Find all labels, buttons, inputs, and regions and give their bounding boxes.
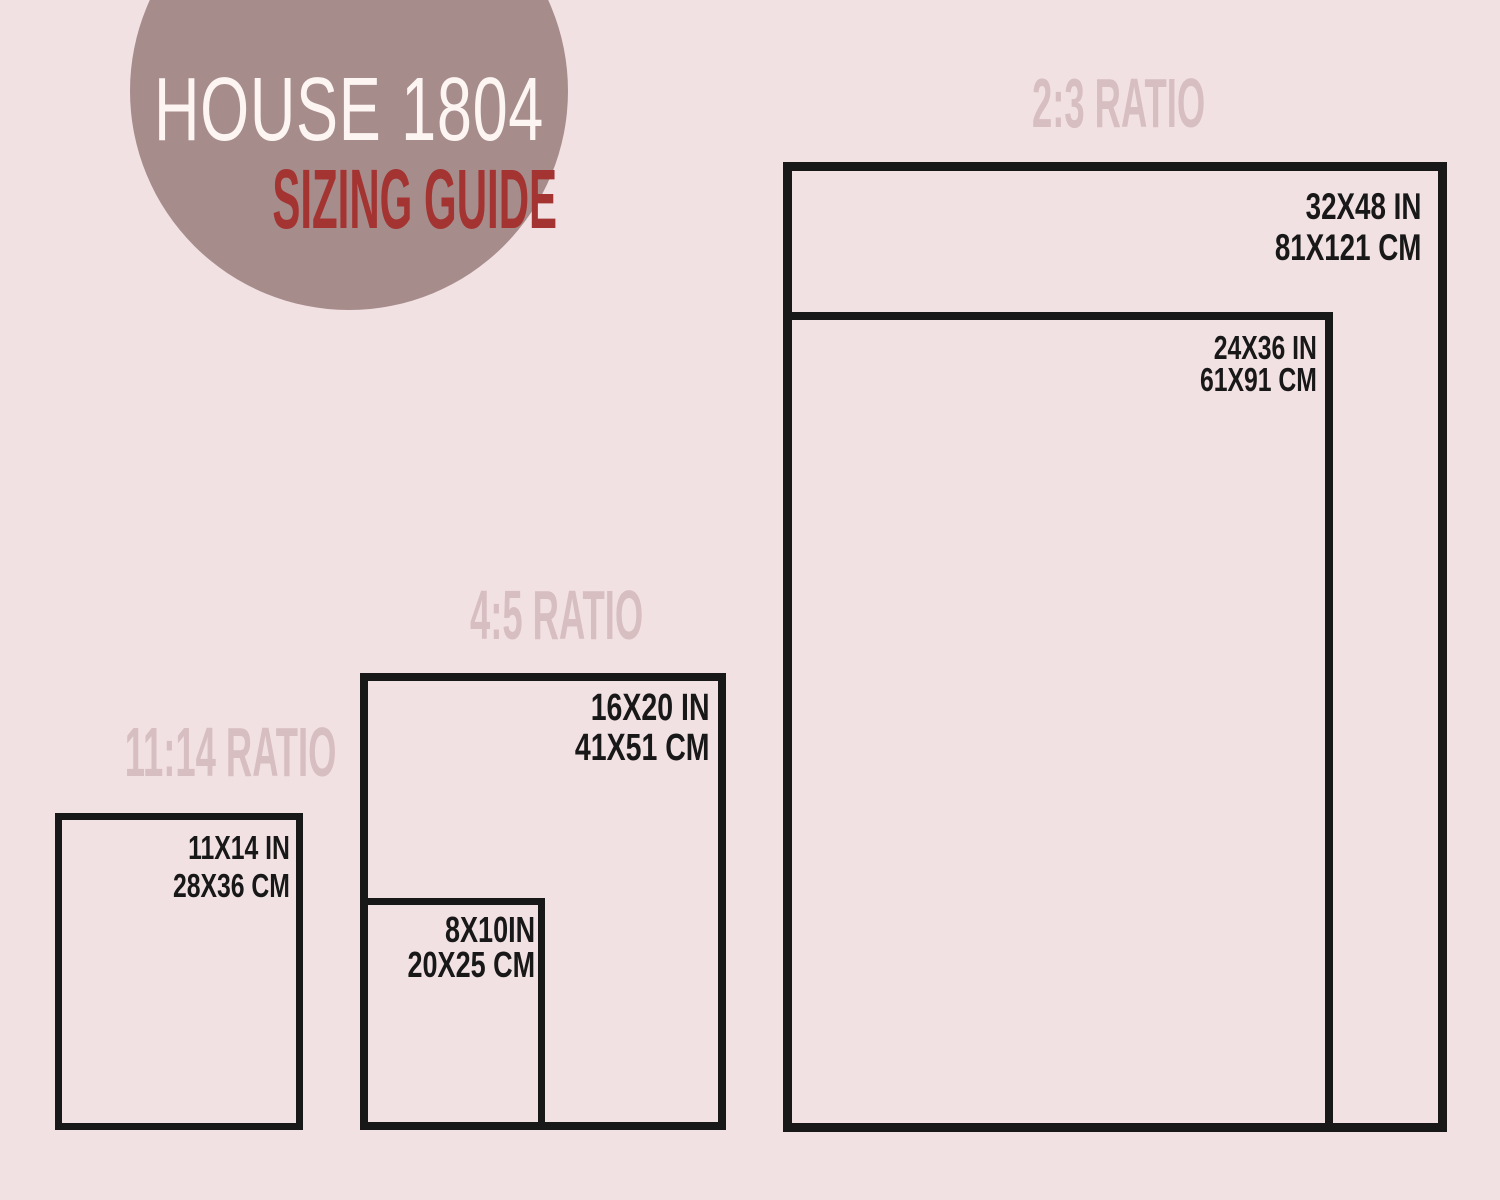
brand-name-right: 1804 xyxy=(401,65,544,155)
size-label-16x20-in: 16X20 IN xyxy=(575,688,710,728)
size-label-8x10-in: 8X10IN xyxy=(407,912,535,947)
ratio-heading-2-3-text: 2:3 RATIO xyxy=(1032,68,1205,138)
size-label-32x48-in: 32X48 IN xyxy=(1274,186,1421,227)
size-label-11x14-in: 11X14 IN xyxy=(173,829,290,867)
frame-8x10: 8X10IN 20X25 CM xyxy=(360,898,545,1130)
brand-name-left: HOUSE xyxy=(154,65,382,155)
ratio-heading-4-5-text: 4:5 RATIO xyxy=(470,580,643,650)
size-label-16x20-cm: 41X51 CM xyxy=(575,728,710,768)
size-label-32x48-cm: 81X121 CM xyxy=(1274,227,1421,268)
sizing-guide-title: SIZING GUIDE xyxy=(130,157,568,241)
ratio-heading-2-3: 2:3 RATIO xyxy=(952,68,1252,138)
size-label-8x10-cm: 20X25 CM xyxy=(407,947,535,982)
brand-logo-circle: HOUSE 1804 SIZING GUIDE xyxy=(130,0,568,310)
ratio-heading-11-14: 11:14 RATIO xyxy=(27,717,327,787)
frame-24x36: 24X36 IN 61X91 CM xyxy=(783,312,1333,1132)
size-label-11x14: 11X14 IN 28X36 CM xyxy=(134,829,290,905)
size-label-11x14-cm: 28X36 CM xyxy=(173,867,290,905)
size-label-24x36-cm: 61X91 CM xyxy=(1200,364,1317,396)
ratio-heading-11-14-text: 11:14 RATIO xyxy=(125,717,337,787)
sizing-guide-title-text: SIZING GUIDE xyxy=(272,157,557,241)
brand-title: HOUSE 1804 xyxy=(196,65,503,155)
size-label-8x10: 8X10IN 20X25 CM xyxy=(365,912,535,982)
ratio-heading-4-5: 4:5 RATIO xyxy=(390,580,690,650)
size-label-16x20: 16X20 IN 41X51 CM xyxy=(530,688,710,768)
sizing-guide-canvas: HOUSE 1804 SIZING GUIDE 2:3 RATIO 4:5 RA… xyxy=(0,0,1500,1200)
size-label-24x36-in: 24X36 IN xyxy=(1200,332,1317,364)
size-label-32x48: 32X48 IN 81X121 CM xyxy=(1226,186,1421,268)
frame-11x14: 11X14 IN 28X36 CM xyxy=(55,813,303,1130)
size-label-24x36: 24X36 IN 61X91 CM xyxy=(1161,332,1317,396)
